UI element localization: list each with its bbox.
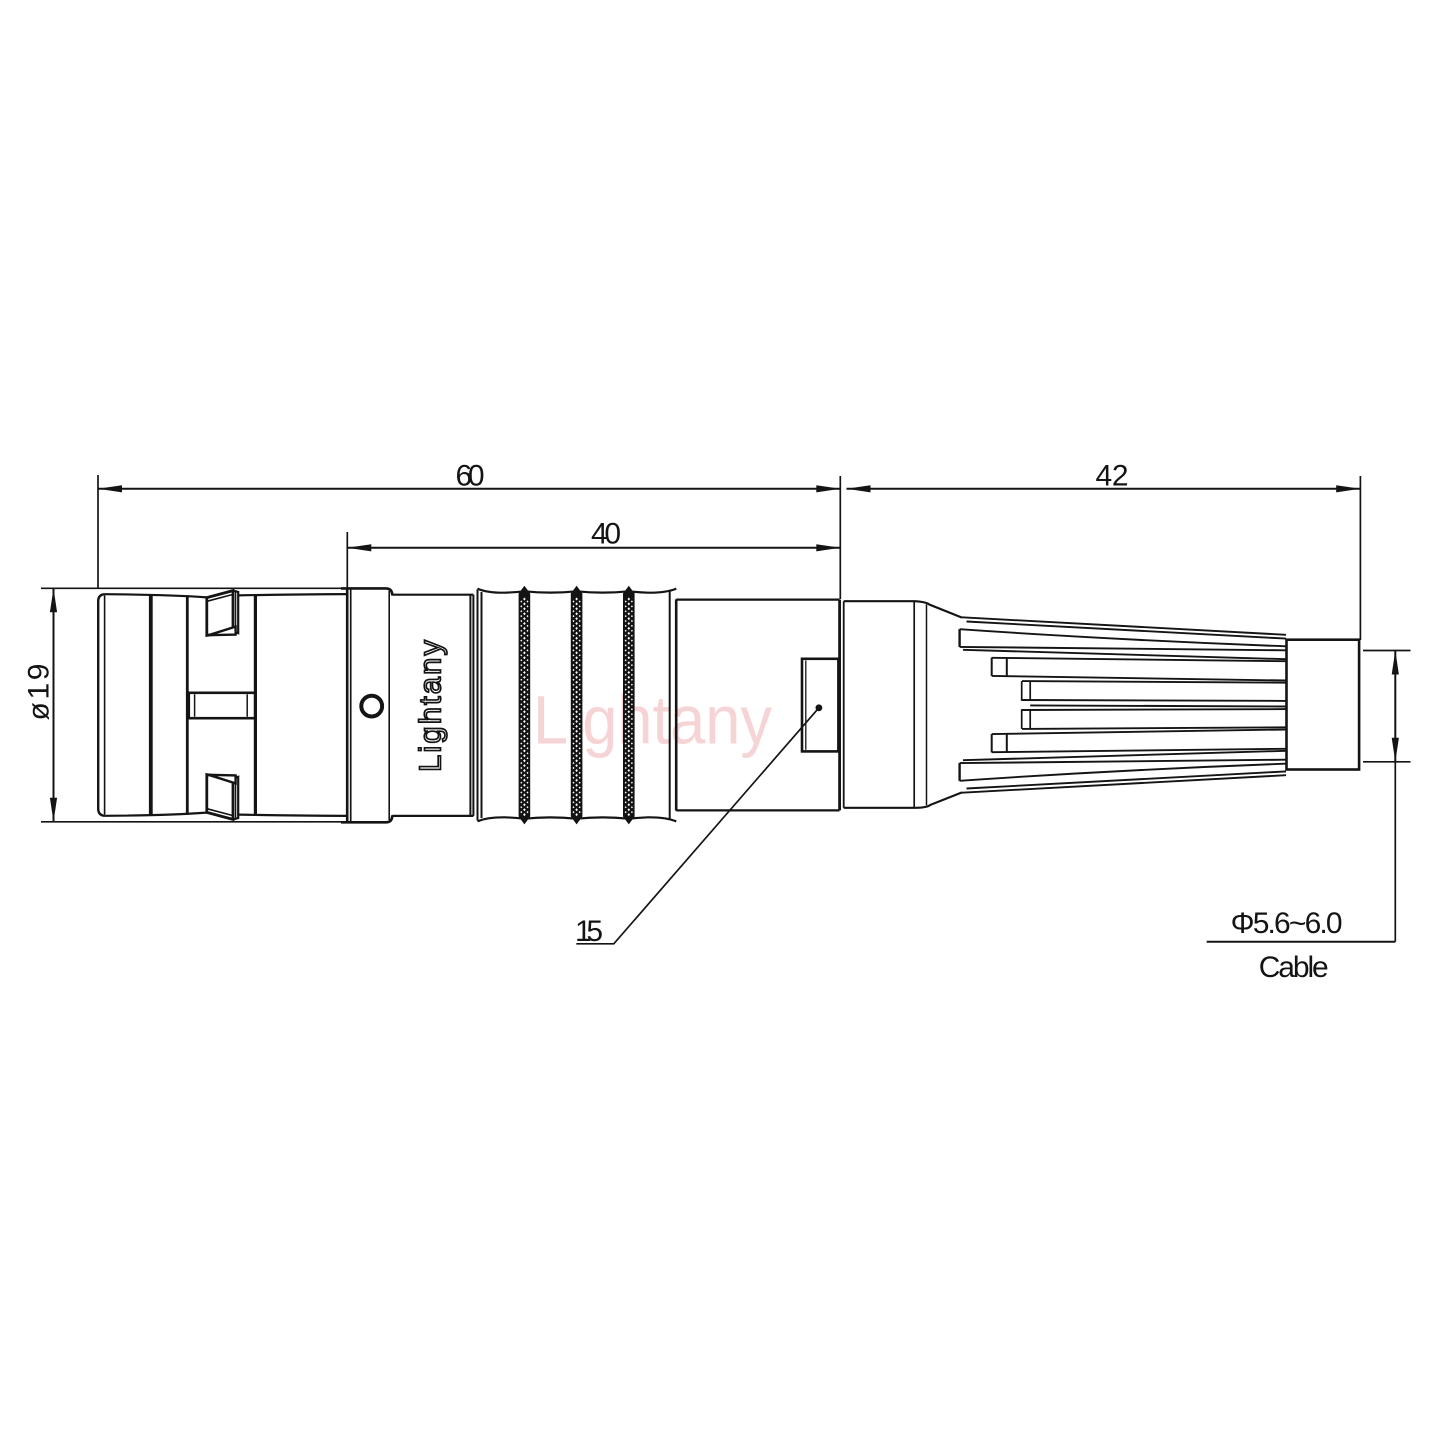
svg-text:Lightany: Lightany — [533, 682, 772, 759]
svg-text:40: 40 — [591, 518, 621, 551]
svg-text:Lightany: Lightany — [413, 640, 448, 773]
svg-text:60: 60 — [456, 460, 485, 493]
svg-text:Φ5.6~6.0: Φ5.6~6.0 — [1231, 907, 1343, 940]
svg-text:15: 15 — [575, 915, 603, 948]
svg-text:Cable: Cable — [1259, 951, 1329, 984]
svg-text:ø19: ø19 — [23, 664, 56, 721]
svg-text:42: 42 — [1096, 460, 1129, 493]
